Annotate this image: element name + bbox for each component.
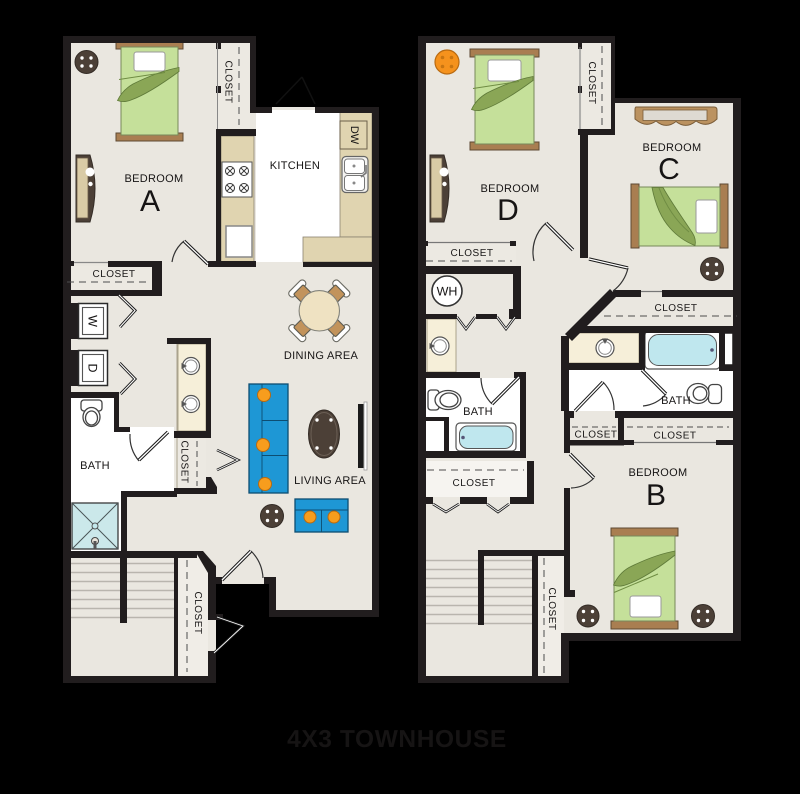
- svg-text:CLOSET: CLOSET: [450, 248, 493, 259]
- svg-text:WH: WH: [437, 285, 458, 299]
- svg-text:D: D: [86, 363, 100, 372]
- svg-text:CLOSET: CLOSET: [574, 430, 617, 441]
- svg-text:BEDROOM: BEDROOM: [125, 173, 184, 185]
- svg-text:BATH: BATH: [661, 395, 691, 407]
- svg-text:KITCHEN: KITCHEN: [270, 160, 320, 172]
- svg-text:CLOSET: CLOSET: [452, 478, 495, 489]
- svg-text:W: W: [86, 315, 100, 327]
- svg-text:BEDROOM: BEDROOM: [629, 467, 688, 479]
- svg-text:D: D: [497, 194, 519, 227]
- svg-text:CLOSET: CLOSET: [586, 61, 597, 104]
- svg-text:4X3 TOWNHOUSE: 4X3 TOWNHOUSE: [287, 726, 507, 753]
- svg-text:B: B: [646, 479, 666, 512]
- svg-text:A: A: [140, 185, 160, 218]
- svg-text:C: C: [658, 153, 680, 186]
- svg-text:CLOSET: CLOSET: [92, 269, 135, 280]
- svg-text:CLOSET: CLOSET: [654, 303, 697, 314]
- svg-text:DW: DW: [348, 126, 360, 145]
- svg-text:BATH: BATH: [463, 406, 493, 418]
- svg-text:CLOSET: CLOSET: [192, 591, 203, 634]
- svg-text:CLOSET: CLOSET: [223, 60, 234, 103]
- svg-text:LIVING AREA: LIVING AREA: [294, 475, 366, 487]
- svg-text:CLOSET: CLOSET: [653, 431, 696, 442]
- svg-text:DINING AREA: DINING AREA: [284, 350, 359, 362]
- svg-text:CLOSET: CLOSET: [179, 440, 190, 483]
- svg-text:CLOSET: CLOSET: [546, 587, 557, 630]
- svg-text:BATH: BATH: [80, 460, 110, 472]
